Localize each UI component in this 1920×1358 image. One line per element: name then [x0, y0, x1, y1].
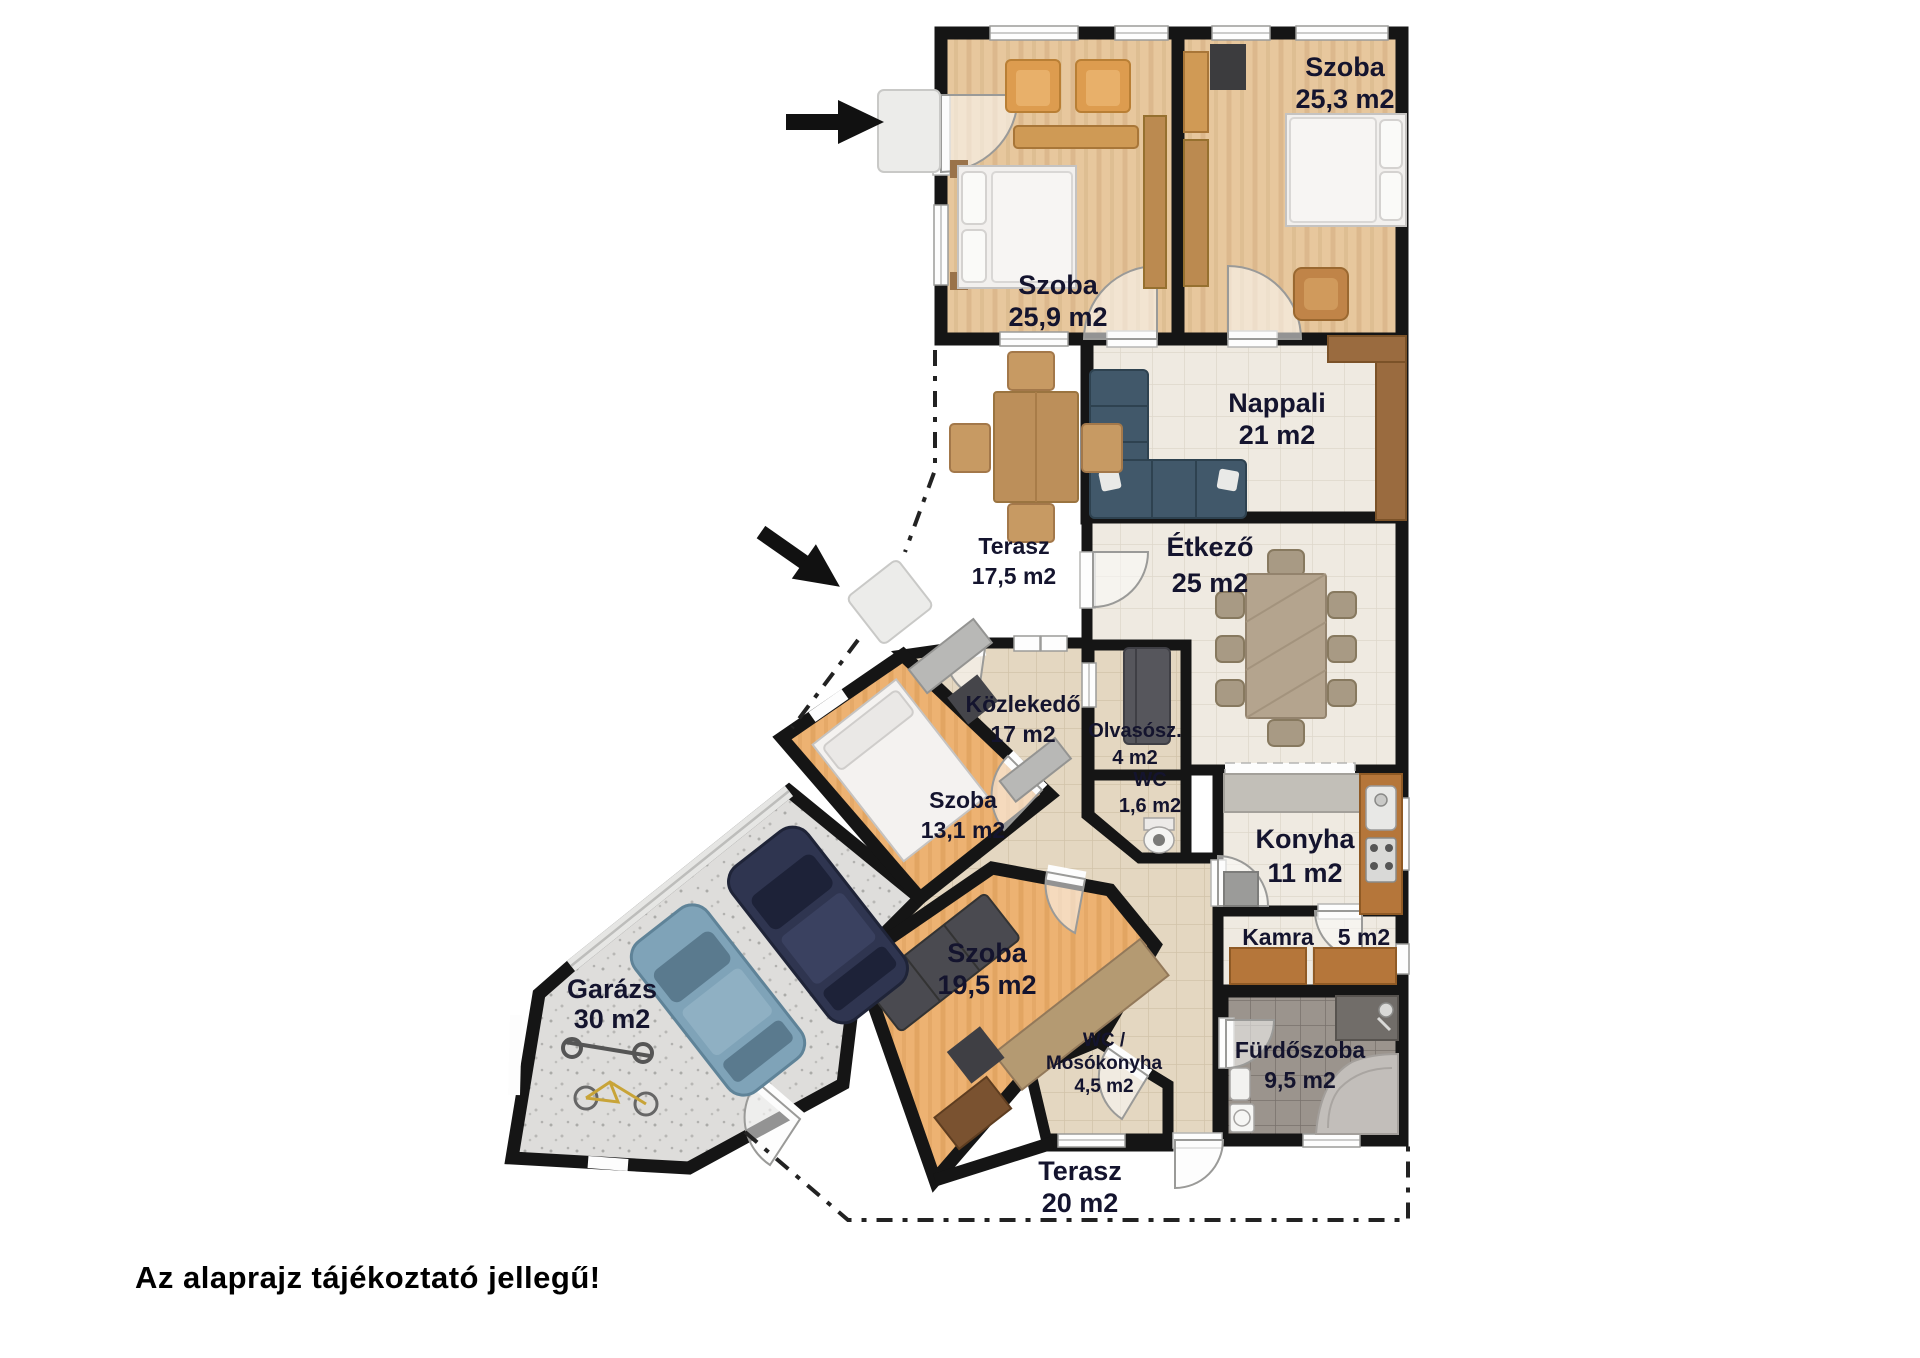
- french-door: [1014, 636, 1067, 651]
- label-szoba2-area: 25,3 m2: [1295, 84, 1394, 114]
- label-etkezo-area: 25 m2: [1172, 568, 1249, 598]
- label-wcmoso-line2: Mosókonyha: [1046, 1053, 1163, 1074]
- label-konyha-name: Konyha: [1255, 824, 1355, 854]
- label-terasz1-name: Terasz: [978, 533, 1049, 559]
- label-wcmoso-line1: WC /: [1083, 1030, 1126, 1051]
- label-wc-name: WC: [1133, 769, 1166, 791]
- label-szoba4-name: Szoba: [947, 938, 1027, 968]
- label-szoba3-name: Szoba: [929, 787, 997, 813]
- label-kamra-area: 5 m2: [1338, 924, 1390, 950]
- label-terasz1-area: 17,5 m2: [972, 563, 1056, 589]
- label-szoba3-area: 13,1 m2: [921, 817, 1005, 843]
- label-konyha-area: 11 m2: [1267, 858, 1342, 888]
- label-etkezo-name: Étkező: [1166, 531, 1253, 562]
- entrance-arrow-icon: [786, 100, 884, 144]
- entry-step-terrace: [846, 559, 933, 646]
- label-szoba1-name: Szoba: [1018, 270, 1098, 300]
- label-nappali-area: 21 m2: [1239, 420, 1316, 450]
- label-terasz2-name: Terasz: [1038, 1156, 1122, 1186]
- disclaimer-text: Az alaprajz tájékoztató jellegű!: [135, 1260, 601, 1295]
- label-szoba1-area: 25,9 m2: [1008, 302, 1107, 332]
- label-furdo-name: Fürdőszoba: [1235, 1037, 1366, 1063]
- floorplan-page: Szoba 25,9 m2 Szoba 25,3 m2 Nappali 21 m…: [0, 0, 1920, 1358]
- label-terasz2-area: 20 m2: [1042, 1188, 1119, 1218]
- label-nappali-name: Nappali: [1228, 388, 1326, 418]
- furniture-wc: [1144, 818, 1174, 853]
- label-kamra-name: Kamra: [1242, 924, 1314, 950]
- label-szoba2-name: Szoba: [1305, 52, 1385, 82]
- label-wcmoso-area: 4,5 m2: [1074, 1076, 1133, 1097]
- floorplan-drawing: Szoba 25,9 m2 Szoba 25,3 m2 Nappali 21 m…: [0, 0, 1920, 1358]
- label-olvaso-name: Olvasósz.: [1088, 720, 1181, 742]
- furniture-kamra: [1230, 948, 1396, 984]
- label-szoba4-area: 19,5 m2: [937, 970, 1036, 1000]
- entry-step-main: [878, 90, 940, 172]
- label-wc-area: 1,6 m2: [1119, 795, 1181, 817]
- label-kozlekedo-area: 17 m2: [990, 721, 1055, 747]
- label-furdo-area: 9,5 m2: [1264, 1067, 1336, 1093]
- label-olvaso-area: 4 m2: [1112, 747, 1158, 769]
- label-kozlekedo-name: Közlekedő: [965, 691, 1080, 717]
- label-garazs-name: Garázs: [567, 974, 657, 1004]
- terrace-arrow-icon: [749, 514, 852, 603]
- label-garazs-area: 30 m2: [574, 1004, 651, 1034]
